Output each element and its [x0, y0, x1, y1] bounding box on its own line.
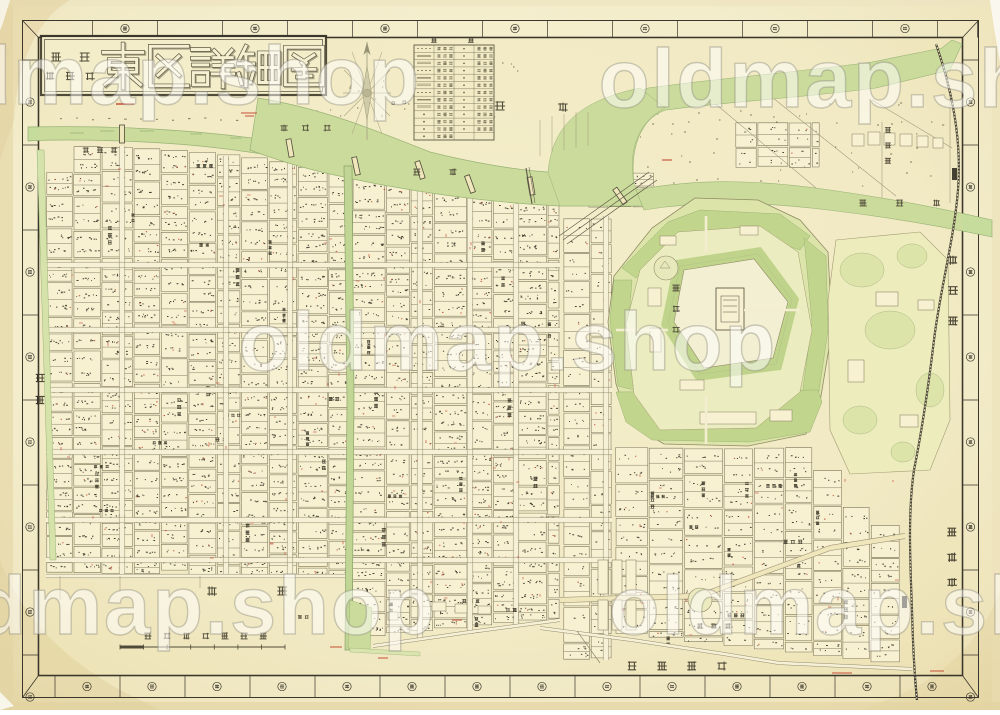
svg-text:oldmap.shop: oldmap.shop: [239, 295, 777, 388]
svg-text:oldmap.shop: oldmap.shop: [599, 32, 1000, 125]
svg-text:oldmap.shop: oldmap.shop: [0, 29, 421, 122]
svg-text:oldmap.shop: oldmap.shop: [0, 559, 436, 652]
svg-text:oldmap.shop: oldmap.shop: [609, 559, 1000, 652]
